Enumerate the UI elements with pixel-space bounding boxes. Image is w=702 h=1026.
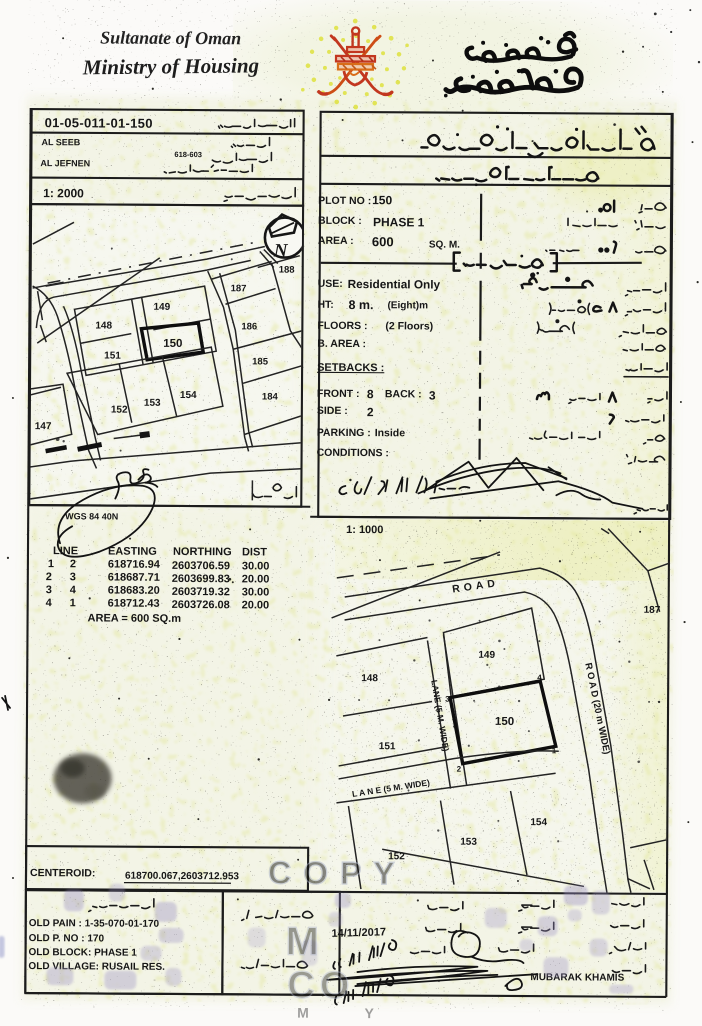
svg-text:2: 2 [457, 765, 462, 774]
svg-text:618683.20: 618683.20 [108, 585, 160, 597]
svg-text:DIST: DIST [242, 546, 267, 558]
svg-text:2: 2 [367, 405, 374, 419]
svg-text:14/11/2017: 14/11/2017 [331, 926, 386, 940]
svg-text:NORTHING: NORTHING [173, 546, 232, 558]
svg-text:AREA = 600 SQ.m: AREA = 600 SQ.m [88, 612, 182, 625]
svg-text:4: 4 [70, 584, 77, 596]
svg-text:152: 152 [111, 405, 128, 416]
svg-text:OLD PAIN : 1-35-070-01-170: OLD PAIN : 1-35-070-01-170 [29, 918, 160, 930]
svg-text:8: 8 [367, 387, 374, 401]
svg-text:1: 1 [70, 597, 76, 609]
svg-text:1: 1000: 1: 1000 [346, 524, 383, 536]
svg-text:FLOORS :: FLOORS : [317, 320, 367, 332]
svg-text:154: 154 [530, 817, 547, 828]
svg-text:618-603: 618-603 [174, 150, 202, 159]
svg-text:COPY: COPY [268, 855, 407, 892]
svg-text:(2 Floors): (2 Floors) [385, 320, 433, 332]
svg-text:4: 4 [46, 597, 53, 609]
svg-text:149: 149 [478, 650, 495, 661]
svg-text:20.00: 20.00 [242, 573, 270, 585]
svg-text:M: M [285, 920, 319, 964]
svg-text:Residential Only: Residential Only [348, 277, 441, 292]
svg-text:186: 186 [241, 321, 257, 332]
svg-text:187: 187 [644, 605, 661, 616]
svg-text:EASTING: EASTING [108, 546, 157, 558]
svg-text:618687.71: 618687.71 [108, 572, 160, 584]
svg-text:N: N [273, 241, 289, 262]
svg-text:2603719.32: 2603719.32 [172, 586, 230, 598]
svg-text:BACK :: BACK : [385, 388, 422, 400]
svg-text:3: 3 [429, 388, 436, 402]
svg-text:01-05-011-01-150: 01-05-011-01-150 [45, 115, 153, 131]
svg-text:OLD P. NO : 170: OLD P. NO : 170 [29, 933, 105, 944]
svg-text:M Y: M Y [297, 1005, 400, 1022]
svg-text:151: 151 [104, 350, 121, 361]
svg-text:30.00: 30.00 [242, 586, 270, 598]
svg-text:4: 4 [537, 673, 542, 682]
svg-text:B. AREA :: B. AREA : [317, 338, 366, 350]
svg-text:148: 148 [95, 320, 112, 331]
svg-text:2603699.83: 2603699.83 [172, 573, 230, 585]
svg-text:2: 2 [70, 558, 76, 570]
svg-text:151: 151 [379, 741, 396, 752]
svg-text:30.00: 30.00 [242, 560, 270, 572]
svg-text:20.00: 20.00 [242, 599, 270, 611]
svg-text:CONDITIONS :: CONDITIONS : [317, 447, 389, 459]
svg-text:187: 187 [231, 283, 247, 294]
svg-text:1: 1 [48, 558, 54, 570]
svg-text:Sultanate of Oman: Sultanate of Oman [100, 27, 241, 48]
svg-text:150: 150 [163, 338, 182, 350]
svg-text:188: 188 [279, 265, 295, 276]
svg-text:PHASE 1: PHASE 1 [373, 215, 425, 229]
svg-text:Ministry of Housing: Ministry of Housing [82, 53, 259, 79]
svg-text:150: 150 [372, 193, 392, 207]
svg-text:CO: CO [287, 965, 354, 1007]
svg-text:600: 600 [372, 234, 394, 249]
svg-text:618700.067,2603712.953: 618700.067,2603712.953 [125, 871, 240, 883]
svg-text:184: 184 [262, 391, 279, 402]
svg-text:618716.94: 618716.94 [108, 559, 161, 571]
svg-text:FRONT :: FRONT : [317, 388, 360, 400]
svg-text:CENTEROID:: CENTEROID: [30, 867, 95, 879]
svg-text:OLD BLOCK: PHASE 1: OLD BLOCK: PHASE 1 [29, 947, 138, 959]
svg-text:AL SEEB: AL SEEB [41, 137, 80, 147]
svg-text:PLOT NO :: PLOT NO : [318, 195, 371, 207]
svg-text:1: 2000: 1: 2000 [43, 186, 84, 200]
svg-text:SETBACKS :: SETBACKS : [317, 362, 384, 374]
svg-text:SIDE :: SIDE : [317, 405, 348, 417]
svg-text:(Eight)m: (Eight)m [387, 300, 428, 311]
svg-text:148: 148 [361, 673, 378, 684]
svg-text:185: 185 [252, 356, 269, 367]
svg-text:147: 147 [35, 421, 52, 432]
svg-text:BLOCK :: BLOCK : [318, 215, 362, 227]
svg-text:USE:: USE: [318, 278, 343, 290]
svg-text:618712.43: 618712.43 [108, 598, 160, 610]
svg-text:PARKING :: PARKING : [317, 427, 371, 439]
svg-text:Inside: Inside [375, 427, 406, 439]
svg-text:2603726.08: 2603726.08 [172, 599, 230, 611]
svg-text:2603706.59: 2603706.59 [172, 560, 230, 572]
svg-text:AL JEFNEN: AL JEFNEN [40, 158, 90, 168]
svg-text:153: 153 [460, 837, 477, 848]
svg-text:3: 3 [70, 571, 76, 583]
svg-text:8 m.: 8 m. [348, 298, 373, 312]
svg-text:153: 153 [144, 398, 161, 409]
svg-text:2: 2 [46, 571, 52, 583]
svg-text:3: 3 [445, 695, 450, 704]
svg-text:AREA :: AREA : [318, 235, 354, 247]
svg-text:SQ. M.: SQ. M. [429, 239, 460, 250]
svg-text:149: 149 [153, 302, 170, 313]
svg-text:HT:: HT: [317, 299, 333, 311]
svg-text:154: 154 [180, 390, 197, 401]
svg-text:150: 150 [495, 716, 514, 728]
svg-text:3: 3 [46, 584, 52, 596]
svg-text:WGS 84 40N: WGS 84 40N [65, 511, 118, 521]
